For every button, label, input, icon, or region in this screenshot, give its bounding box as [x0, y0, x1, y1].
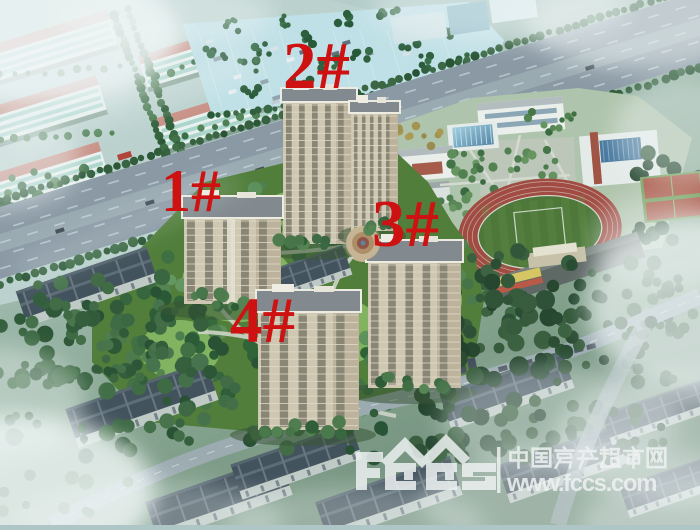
svg-text:1#: 1#	[161, 158, 221, 224]
svg-text:4#: 4#	[230, 285, 295, 357]
svg-text:2#: 2#	[283, 29, 350, 103]
svg-text:www.fccs.com: www.fccs.com	[506, 470, 656, 497]
svg-text:3#: 3#	[372, 187, 439, 261]
